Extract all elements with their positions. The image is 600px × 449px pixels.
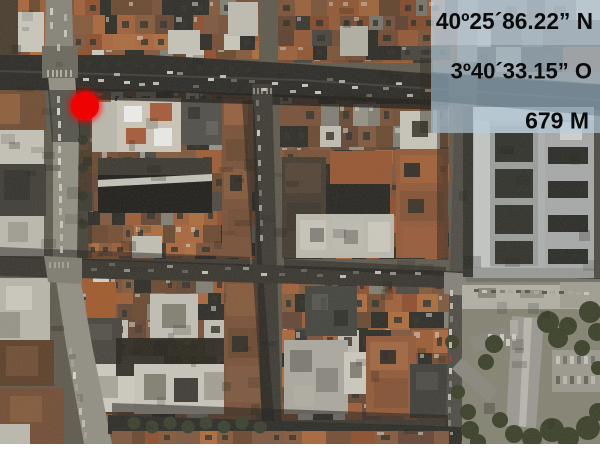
svg-text:679 M: 679 M <box>525 108 589 134</box>
svg-text:3º40´33.15” O: 3º40´33.15” O <box>451 59 592 84</box>
svg-text:40º25´86.22” N: 40º25´86.22” N <box>436 8 593 34</box>
